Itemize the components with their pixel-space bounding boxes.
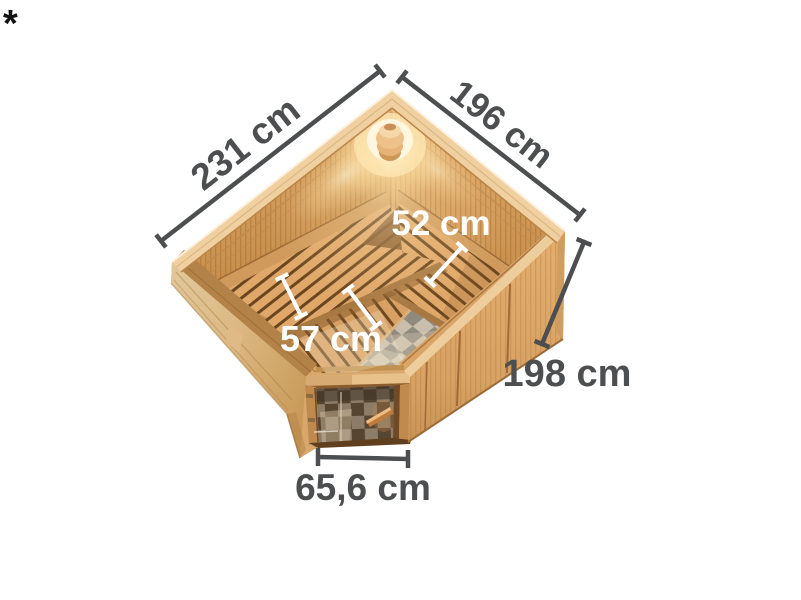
svg-text:65,6 cm: 65,6 cm (295, 467, 431, 508)
svg-text:*: * (3, 3, 18, 45)
svg-text:52 cm: 52 cm (391, 204, 490, 243)
svg-text:198 cm: 198 cm (503, 353, 632, 395)
svg-text:57 cm: 57 cm (280, 318, 382, 359)
